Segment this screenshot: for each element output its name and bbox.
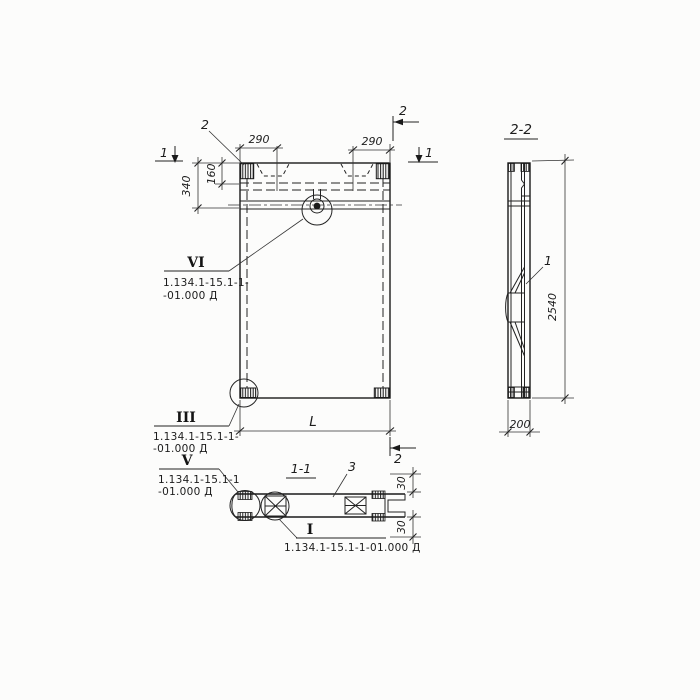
dim-length: L (234, 400, 396, 436)
dim-length-text: L (309, 414, 317, 430)
dim-290-right-text: 290 (362, 135, 383, 148)
anchor-block-bottom-right (374, 388, 389, 398)
anchor-edge-top-right (521, 163, 530, 171)
side-view: 2-2 1 (499, 122, 574, 437)
part-label-3: 3 (333, 459, 356, 497)
section-mark-2-bottom: 2 (390, 437, 416, 466)
middle-insert (345, 497, 366, 514)
callout-iii-ref2: -01.000 Д (153, 443, 208, 455)
dim-2540-text: 2540 (546, 293, 559, 321)
callout-iii-numeral: III (176, 410, 196, 426)
section-view-title: 1-1 (291, 461, 311, 476)
dim-30-top-text: 30 (396, 476, 408, 490)
side-view-title: 2-2 (510, 122, 532, 138)
dim-30-bottom-text: 30 (396, 520, 408, 534)
section-mark-1-right: 1 (408, 145, 438, 163)
dim-340-160: 340 160 (180, 157, 239, 214)
dim-290-left-text: 290 (249, 133, 270, 146)
technical-drawing: 290 290 340 160 L (0, 0, 700, 700)
anchor-edge-bottom-left (508, 388, 514, 398)
rib-hatch-bottom (372, 514, 385, 522)
anchor-edge-bottom-right (523, 388, 530, 398)
recess-left (257, 164, 289, 176)
section-2-bottom-text: 2 (394, 451, 402, 466)
section-1-left-text: 1 (160, 145, 168, 160)
rib-hatch-top (372, 491, 385, 499)
section-2-top-text: 2 (399, 103, 407, 118)
part-2-text: 2 (201, 117, 209, 132)
callout-i-ref: 1.134.1-15.1-1-01.000 Д (284, 542, 421, 554)
dim-340-text: 340 (180, 176, 193, 197)
anchor-block-top-left (241, 164, 254, 179)
callout-iii-ref1: 1.134.1-15.1-1- (153, 431, 239, 443)
part-3-text: 3 (348, 459, 356, 474)
socket-insert (265, 496, 286, 516)
callout-vi-ref2: -01.000 Д (163, 290, 218, 302)
end-chamfer-top (238, 492, 252, 500)
callout-v-numeral: V (181, 453, 194, 469)
callout-v-ref1: 1.134.1-15.1-1 (158, 474, 240, 486)
anchor-block-top-right (376, 164, 389, 179)
callout-vi: VI 1.134.1-15.1-1- -01.000 Д (163, 219, 303, 302)
dim-2540: 2540 (532, 154, 574, 404)
part-label-2: 2 (201, 117, 244, 165)
dim-290-left: 290 (235, 133, 283, 191)
callout-vi-numeral: VI (186, 255, 204, 271)
drawing-sheet: 290 290 340 160 L (0, 0, 700, 700)
section-arrow-down-icon (172, 155, 179, 163)
callout-i-numeral: I (307, 522, 314, 538)
recess-right (341, 164, 373, 176)
part-1-text: 1 (544, 253, 552, 268)
front-view (228, 163, 402, 407)
section-view: 1-1 3 (230, 459, 421, 554)
callout-vi-ref1: 1.134.1-15.1-1- (163, 277, 249, 289)
callout-v-ref2: -01.000 Д (158, 486, 213, 498)
dim-160-text: 160 (205, 164, 218, 185)
insert-detail (302, 189, 332, 225)
callout-iii: III 1.134.1-15.1-1- -01.000 Д (153, 404, 239, 455)
section-mark-1-left: 1 (155, 145, 183, 163)
anchor-block-bottom-left (241, 388, 256, 398)
dim-200-text: 200 (510, 418, 531, 431)
section-1-right-text: 1 (425, 145, 433, 160)
section-arrow-left-icon (394, 119, 403, 125)
callout-v: V 1.134.1-15.1-1 -01.000 Д (158, 453, 240, 498)
dim-200: 200 (499, 400, 540, 437)
section-mark-2-top: 2 (393, 103, 419, 141)
anchor-edge-top-left (508, 163, 514, 171)
